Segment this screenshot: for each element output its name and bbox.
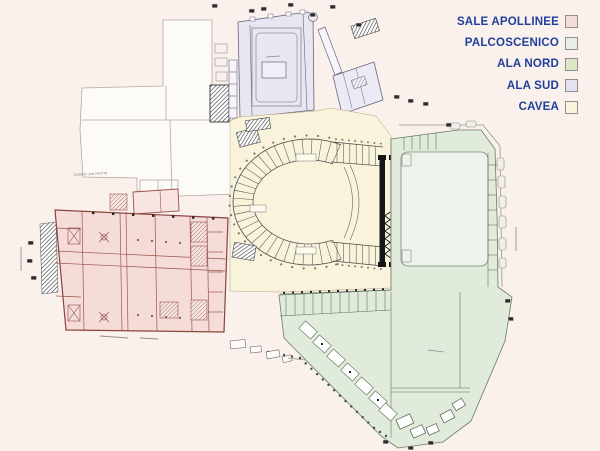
legend-label: ALA SUD <box>507 80 559 92</box>
legend-item-ala-sud: ALA SUD <box>507 75 578 96</box>
legend: SALE APOLLINEEPALCOSCENICOALA NORDALA SU… <box>457 11 578 118</box>
legend-label: PALCOSCENICO <box>465 37 559 49</box>
legend-color-swatch <box>565 37 578 50</box>
legend-label: ALA NORD <box>497 58 559 70</box>
legend-item-ala-nord: ALA NORD <box>497 54 578 75</box>
legend-color-swatch <box>565 58 578 71</box>
legend-item-palcoscenico: PALCOSCENICO <box>465 32 578 53</box>
legend-color-swatch <box>565 101 578 114</box>
region-palcoscenico[interactable] <box>401 152 488 266</box>
theater-plan-page: CAMPO SAN FANTIN <box>0 0 600 451</box>
legend-label: CAVEA <box>519 101 559 113</box>
legend-label: SALE APOLLINEE <box>457 16 559 28</box>
region-palcoscenico-group <box>401 152 488 266</box>
legend-item-sale-apollinee: SALE APOLLINEE <box>457 11 578 32</box>
legend-color-swatch <box>565 79 578 92</box>
legend-color-swatch <box>565 15 578 28</box>
legend-item-cavea: CAVEA <box>519 97 578 118</box>
region-cavea-group <box>229 108 391 292</box>
